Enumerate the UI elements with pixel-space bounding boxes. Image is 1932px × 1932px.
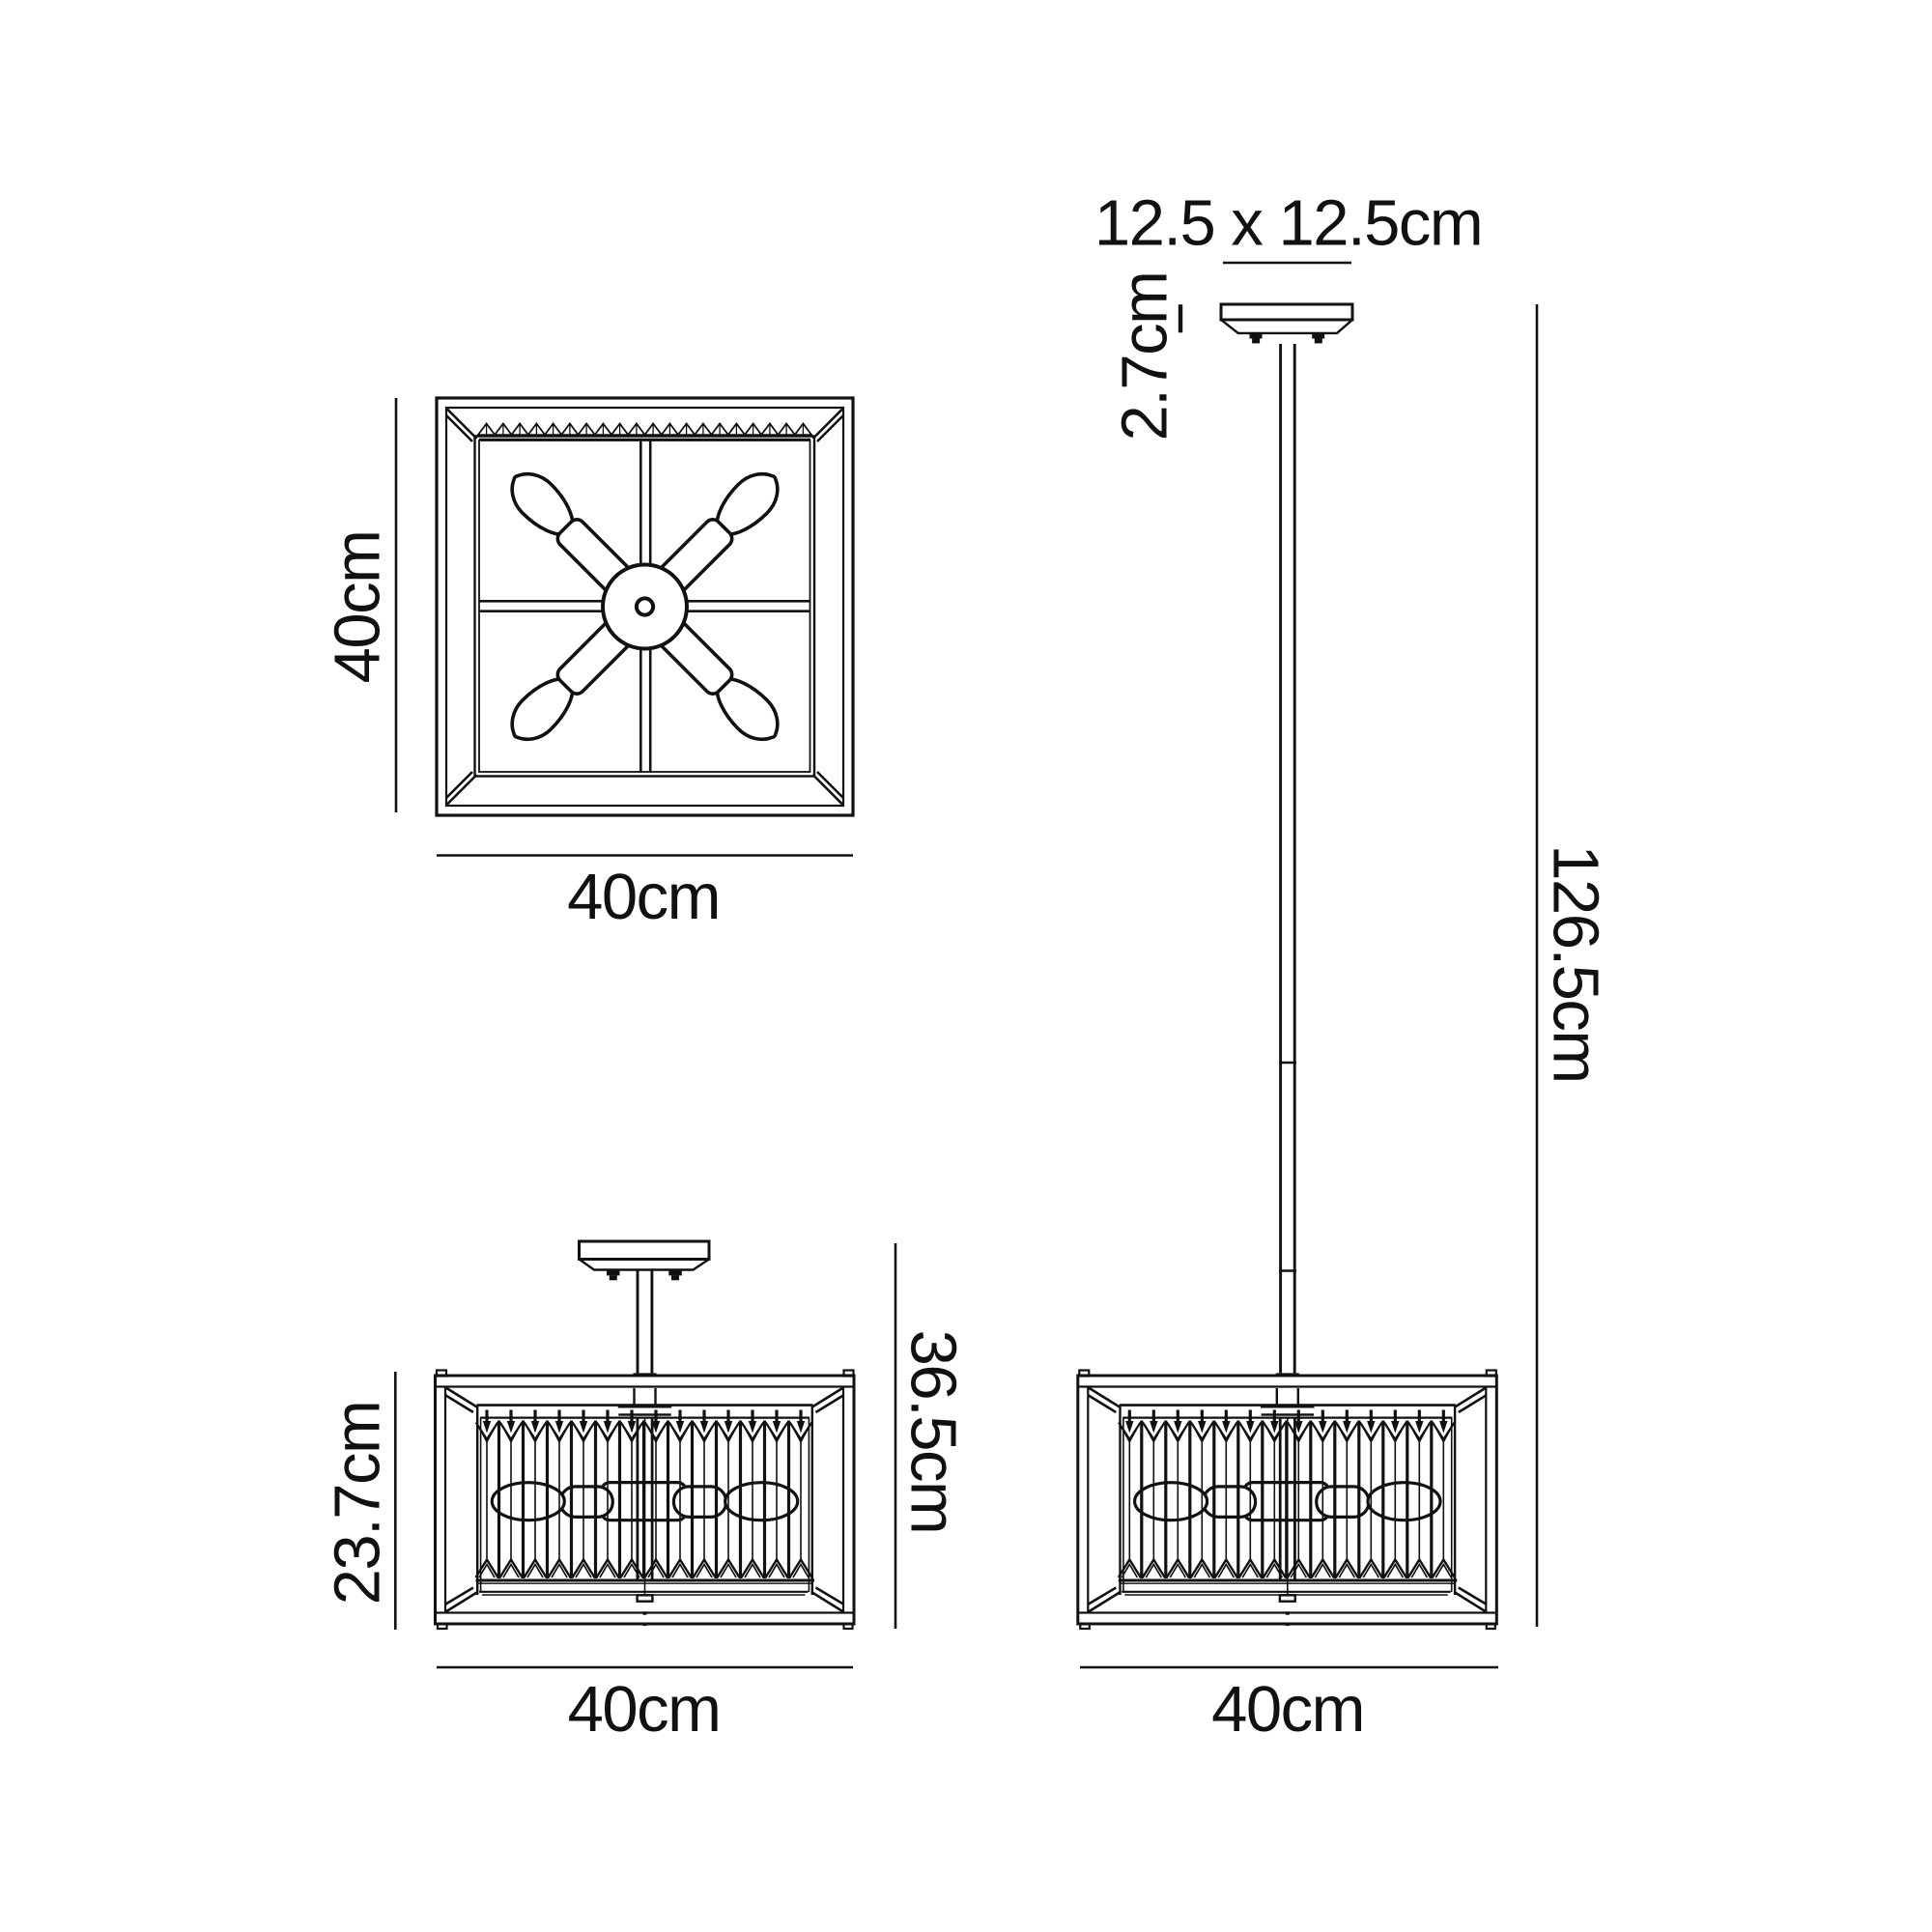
svg-text:36.5cm: 36.5cm xyxy=(897,1330,970,1534)
svg-text:23.7cm: 23.7cm xyxy=(321,1402,393,1605)
svg-text:12.5 x 12.5cm: 12.5 x 12.5cm xyxy=(1094,187,1482,260)
svg-text:40cm: 40cm xyxy=(567,861,720,933)
svg-text:40cm: 40cm xyxy=(1211,1673,1364,1746)
svg-text:126.5cm: 126.5cm xyxy=(1540,844,1612,1082)
svg-text:40cm: 40cm xyxy=(568,1673,721,1746)
svg-text:2.7cm: 2.7cm xyxy=(1109,272,1181,441)
svg-text:40cm: 40cm xyxy=(321,531,393,684)
